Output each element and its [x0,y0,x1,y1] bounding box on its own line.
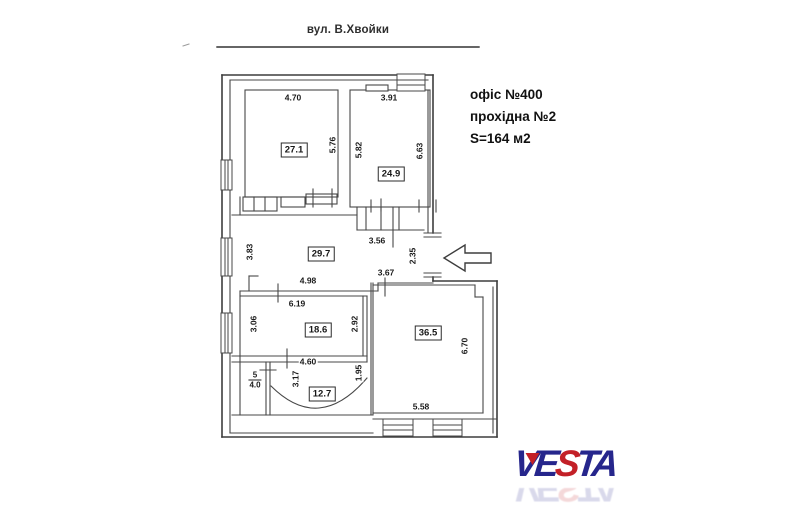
vesta-logo-reflection: VESTA [514,488,659,511]
vesta-logo: VESTA [511,440,661,488]
logo-letter: A [590,488,617,509]
floor-plan-page: вул. В.Хвойки офіс №400 прохідна №2 S=16… [0,0,794,511]
logo-letter: A [590,443,617,484]
floor-plan-drawing [0,0,794,511]
logo-red-triangle-icon [526,453,540,465]
entrance-arrow-icon [444,245,491,271]
